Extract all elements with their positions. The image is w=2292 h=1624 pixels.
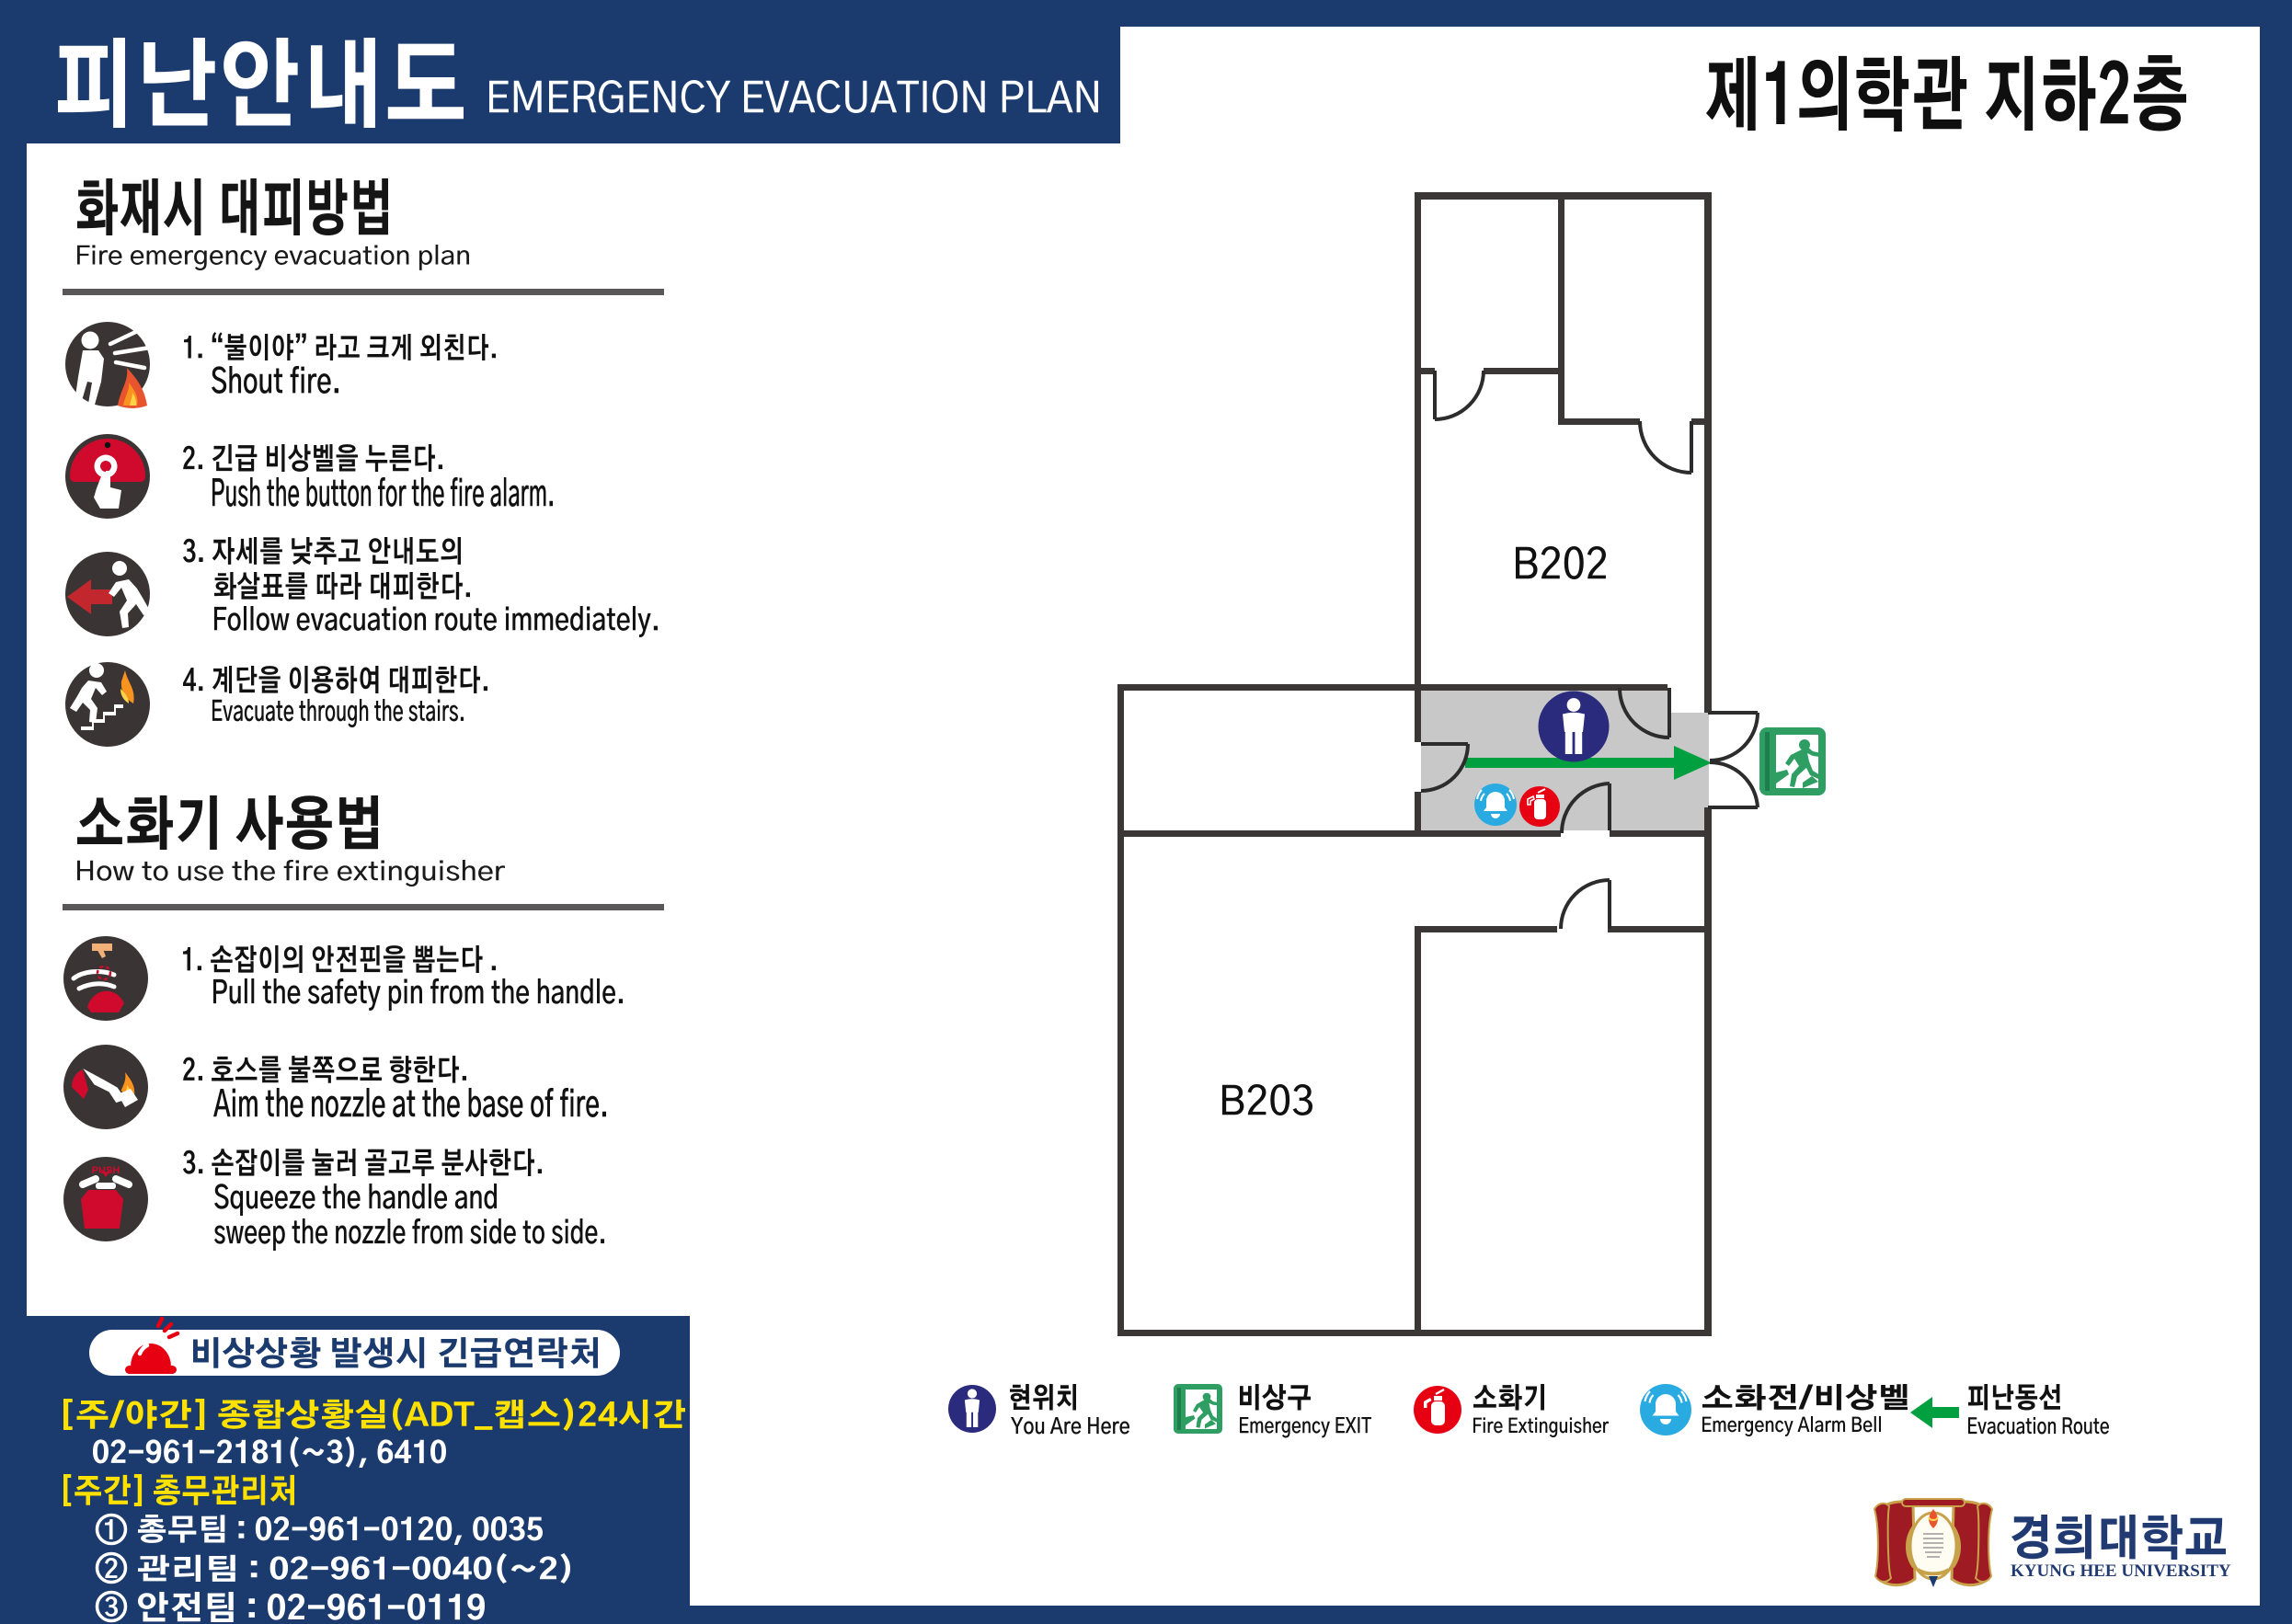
- svg-text:PUSH: PUSH: [92, 1165, 120, 1176]
